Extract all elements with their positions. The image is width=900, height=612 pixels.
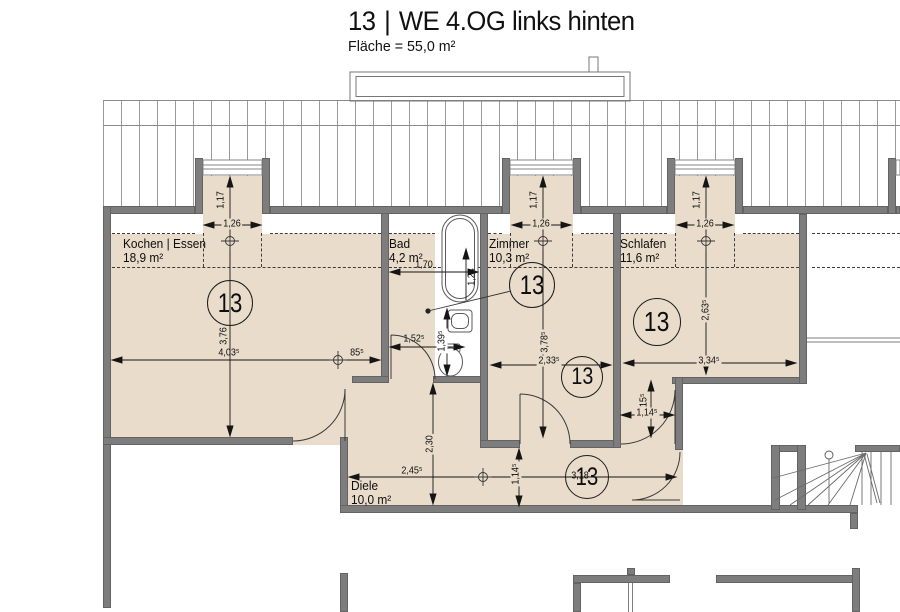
dormer-wall: [195, 158, 203, 214]
wall-segment: [340, 505, 858, 513]
bathtub-icon: [442, 215, 478, 302]
unit-number-text: 13: [576, 463, 599, 492]
dimension-label: 3,34⁵: [697, 356, 722, 367]
wall-segment: [799, 214, 807, 384]
room-label-zimmer: Zimmer 10,3 m²: [489, 238, 529, 265]
wall-segment: [480, 213, 488, 448]
title-separator: |: [384, 6, 390, 37]
stair-wall: [855, 445, 900, 452]
total-area-label: Fläche = 55,0 m²: [348, 38, 635, 55]
unit-number-text: 13: [644, 306, 670, 338]
wall-segment: [896, 206, 900, 214]
height-line-dashed: [112, 233, 195, 234]
dormer-wall: [502, 158, 510, 214]
dimension-label: 1,17: [529, 191, 540, 209]
dimension-label: 1,26: [221, 219, 242, 230]
unit-number-badge: 13: [207, 280, 253, 326]
height-line-dashed: [812, 267, 900, 268]
stair-wall: [771, 445, 780, 510]
wall-segment: [581, 206, 667, 214]
height-line-dashed: [112, 267, 381, 268]
room-name: Schlafen: [620, 238, 666, 252]
dimension-label: 1,52⁵: [403, 334, 424, 345]
wall-segment: [672, 377, 807, 384]
wall-segment: [675, 377, 683, 450]
dimension-label: 1,26: [530, 219, 551, 230]
dimension-label: 2,45⁵: [401, 466, 422, 477]
dimension-label: 1,14⁵: [635, 408, 660, 419]
wall-segment: [573, 575, 670, 583]
dimension-label: 1,17: [692, 191, 703, 209]
dimension-label: 85⁵: [350, 348, 364, 359]
height-line-dashed: [621, 233, 667, 234]
unit-number-badge: 13: [565, 455, 609, 499]
room-area: 18,9 m²: [123, 252, 206, 266]
dormer-wall: [573, 158, 581, 214]
room-area: 11,6 m²: [620, 252, 666, 266]
dimension-label: 1,14⁵: [511, 462, 522, 487]
wall-segment: [103, 206, 111, 608]
height-line-dashed: [812, 233, 900, 234]
unit-number-text: 13: [218, 288, 243, 319]
wall-segment: [480, 440, 520, 448]
stair-wall: [797, 445, 806, 510]
floor-plan-canvas: 13 | WE 4.OG links hinten Fläche = 55,0 …: [0, 0, 900, 612]
room-label-schlafen: Schlafen 11,6 m²: [620, 238, 666, 265]
height-line-dashed: [488, 233, 502, 234]
height-line-dashed: [581, 233, 613, 234]
dimension-label: 1,24: [467, 268, 478, 286]
wall-segment: [716, 575, 860, 583]
height-line-dashed: [621, 267, 799, 268]
room-name: Kochen | Essen: [123, 238, 206, 252]
room-name: Zimmer: [489, 238, 529, 252]
wall-segment: [352, 376, 389, 383]
stair-treads: [773, 451, 891, 505]
dimension-label: 1,70: [415, 260, 433, 271]
entry-door-opening: [675, 450, 683, 505]
dormer-wall: [888, 158, 896, 214]
height-line-dashed: [488, 267, 613, 268]
page-title: 13 | WE 4.OG links hinten: [348, 6, 635, 37]
dimension-label: 4,03⁵: [218, 348, 239, 359]
wall-segment: [627, 568, 635, 575]
height-line-dashed: [675, 233, 676, 267]
dimension-label: 1,39⁵: [437, 329, 448, 354]
door-opening-bad: [389, 376, 433, 383]
dimension-label: 3,76: [219, 325, 230, 346]
dormer-wall: [667, 158, 675, 214]
door-opening-kochen: [293, 437, 340, 445]
wall-segment: [743, 206, 888, 214]
title-text: WE 4.OG links hinten: [399, 6, 635, 37]
wall-segment: [103, 437, 293, 445]
wall-segment: [340, 573, 348, 612]
skylight-outline: [350, 57, 630, 101]
dormer-wall: [262, 158, 270, 214]
height-line-dashed: [389, 233, 435, 234]
height-line-dashed: [270, 233, 381, 234]
unit-number-text: 13: [571, 363, 593, 391]
dimension-label: 2,33⁵: [537, 356, 562, 367]
wall-segment: [103, 206, 195, 214]
room-name: Diele: [351, 480, 391, 494]
height-line-dashed: [734, 233, 735, 267]
room-label-kochen: Kochen | Essen 18,9 m²: [123, 238, 206, 265]
plan-title-block: 13 | WE 4.OG links hinten Fläche = 55,0 …: [348, 6, 650, 55]
height-line-dashed: [572, 233, 573, 267]
dimension-label: 1,17: [216, 191, 227, 209]
dimension-label: 3,78⁵: [540, 330, 551, 355]
unit-number-badge: 13: [509, 262, 555, 308]
dormer-wall: [735, 158, 743, 214]
dimension-label: 1,26: [694, 219, 715, 230]
wall-segment: [573, 583, 581, 612]
wall-segment: [850, 513, 858, 529]
unit-number-text: 13: [520, 270, 545, 301]
sink-icon: [448, 310, 472, 332]
height-line-dashed: [261, 233, 262, 267]
unit-number: 13: [348, 6, 376, 37]
room-label-diele: Diele 10,0 m²: [351, 480, 391, 507]
unit-number-badge: 13: [633, 298, 681, 346]
height-line-dashed: [743, 233, 799, 234]
wall-segment: [852, 568, 860, 612]
room-area: 10,0 m²: [351, 494, 391, 508]
dimension-label: 2,30: [425, 433, 436, 454]
room-name: Bad: [389, 238, 423, 252]
wall-segment: [340, 437, 348, 513]
roof-eave-line: [103, 125, 900, 126]
unit-number-badge: 13: [561, 356, 603, 398]
dimension-label: 2,63⁵: [701, 298, 712, 323]
wall-segment: [381, 213, 389, 383]
